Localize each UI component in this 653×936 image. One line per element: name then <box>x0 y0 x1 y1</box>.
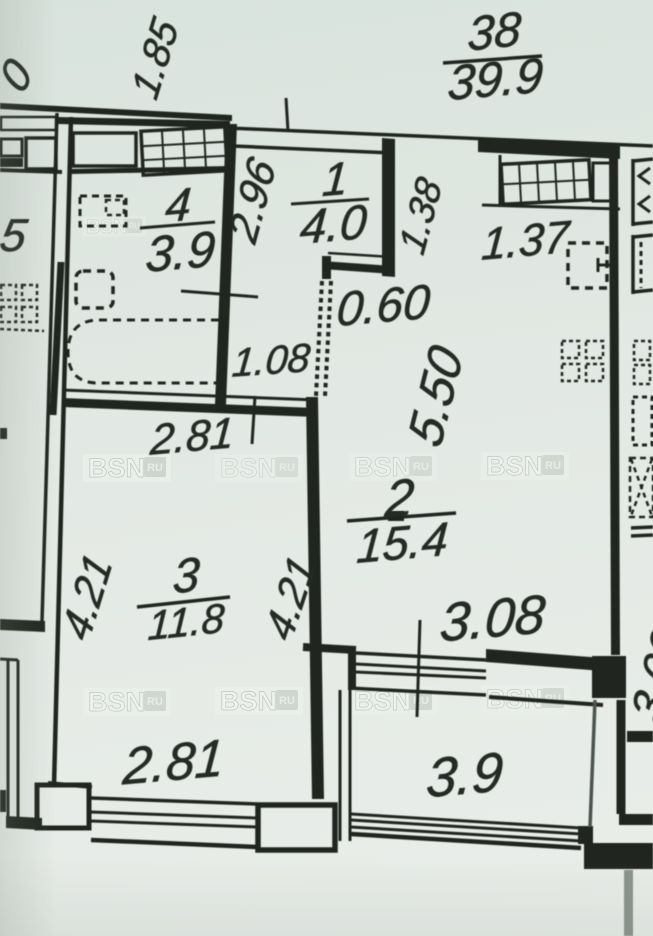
svg-text:1.38: 1.38 <box>392 171 451 261</box>
svg-text:11.8: 11.8 <box>147 595 226 649</box>
svg-text:1.37: 1.37 <box>480 211 573 270</box>
svg-text:1.08: 1.08 <box>230 335 312 386</box>
svg-text:5.50: 5.50 <box>397 337 473 454</box>
svg-text:3.9: 3.9 <box>144 220 217 283</box>
svg-text:3.08: 3.08 <box>438 583 547 653</box>
svg-text:4.21: 4.21 <box>54 547 122 648</box>
svg-text:3.9: 3.9 <box>425 740 506 809</box>
svg-text:0.60: 0.60 <box>335 275 432 337</box>
svg-text:39.9: 39.9 <box>446 48 545 112</box>
svg-text:4.0: 4.0 <box>298 195 368 255</box>
svg-text:3: 3 <box>172 547 202 604</box>
svg-text:3.00: 3.00 <box>621 621 653 729</box>
svg-text:2.81: 2.81 <box>148 409 236 465</box>
svg-text:1.85: 1.85 <box>123 11 187 106</box>
svg-text:15.4: 15.4 <box>355 513 450 574</box>
svg-text:2.81: 2.81 <box>120 729 226 796</box>
